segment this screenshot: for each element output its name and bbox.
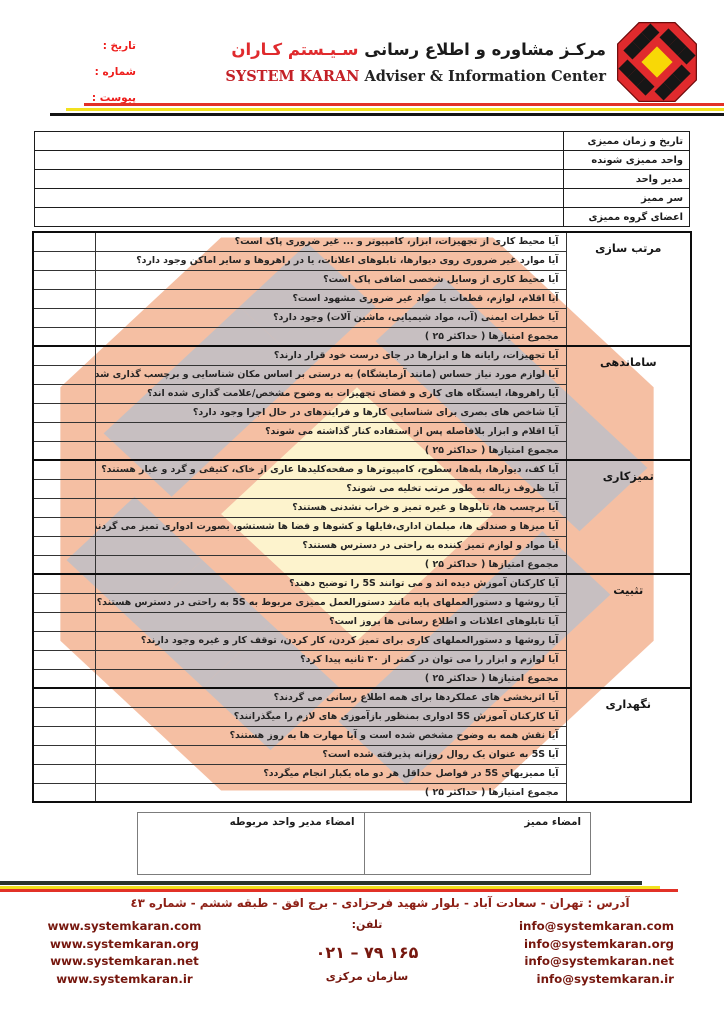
score-cell	[33, 707, 95, 726]
question-text: آیا خطرات ایمنی (آب، مواد شیمیایی، ماشین…	[95, 308, 566, 327]
score-cell	[33, 308, 95, 327]
score-cell	[33, 574, 95, 593]
website-item: www.systemkaran.ir	[22, 971, 227, 989]
score-cell	[33, 517, 95, 536]
question-text: آیا لوازم و ابزار را می توان در کمتر از …	[95, 650, 566, 669]
section-title: تمیزکاری	[566, 460, 691, 574]
info-row-value-cell	[35, 132, 564, 151]
website-list: www.systemkaran.comwww.systemkaran.orgww…	[22, 918, 227, 988]
header-stripe-yellow	[66, 108, 724, 111]
section-total-label: مجموع امتیازها ( حداکثر ۲۵ )	[95, 555, 566, 574]
company-title-en-red: SYSTEM KARAN	[225, 68, 359, 85]
checklist-section: نگهداریآیا اثربخشی های عملکردها برای همه…	[33, 688, 691, 802]
section-title: نگهداری	[566, 688, 691, 802]
company-title-fa-red: سـیـستم کـاران	[231, 40, 358, 59]
score-cell	[33, 745, 95, 764]
question-text: آیا محیط کاری از تجهیزات، ابزار، کامپیوت…	[95, 232, 566, 251]
total-score-cell	[33, 327, 95, 346]
score-cell	[33, 289, 95, 308]
checklist-section: تثبیتآیا کارکنان آموزش دیده اند و می توا…	[33, 574, 691, 688]
checklist-section: ساماندهیآیا تجهیزات، رایانه ها و ابزارها…	[33, 346, 691, 460]
score-cell	[33, 365, 95, 384]
question-text: آیا ظروف زباله به طور مرتب تخلیه می شوند…	[95, 479, 566, 498]
score-cell	[33, 270, 95, 289]
score-cell	[33, 384, 95, 403]
score-cell	[33, 650, 95, 669]
phone-label: تلفن:	[282, 918, 452, 931]
score-cell	[33, 631, 95, 650]
address-line: آدرس : تهران - سعادت آباد - بلوار شهید ف…	[60, 896, 700, 910]
question-text: آیا میزها و صندلی ها، مبلمان اداری،فایله…	[95, 517, 566, 536]
footer-stripe-black	[0, 881, 642, 885]
website-item: www.systemkaran.net	[22, 953, 227, 971]
question-text: آیا لوازم مورد نیاز حساس (مانند آزمایشگا…	[95, 365, 566, 384]
total-score-cell	[33, 783, 95, 802]
audit-info-table: تاریخ و زمان ممیزیواحد ممیزی شوندهمدیر و…	[34, 131, 690, 227]
question-text: آیا اقلام و ابزار بلافاصله پس از استفاده…	[95, 422, 566, 441]
question-text: آیا راهروها، ایستگاه های کاری و فضای تجه…	[95, 384, 566, 403]
header-stripe-black	[50, 113, 724, 116]
email-item: info@systemkaran.net	[474, 953, 674, 971]
system-karan-logo-icon	[616, 21, 698, 103]
header-stripe-red	[84, 103, 724, 106]
section-total-label: مجموع امتیازها ( حداکثر ۲۵ )	[95, 441, 566, 460]
question-text: آیا کارکنان آموزش 5S ادواری بمنظور بازآم…	[95, 707, 566, 726]
footer-stripe-red	[0, 889, 678, 892]
email-item: info@systemkaran.com	[474, 918, 674, 936]
question-text: آیا اثربخشی های عملکردها برای همه اطلاع …	[95, 688, 566, 707]
score-cell	[33, 479, 95, 498]
question-row: نگهداریآیا اثربخشی های عملکردها برای همه…	[33, 688, 691, 707]
section-title: تثبیت	[566, 574, 691, 688]
score-cell	[33, 688, 95, 707]
phone-number: ۰۲۱ – ۷۹ ۱۶۵	[282, 943, 452, 962]
question-text: آیا کارکنان آموزش دیده اند و می توانند 5…	[95, 574, 566, 593]
signature-row: امضاء ممیز امضاء مدیر واحد مربوطه	[138, 813, 591, 875]
total-score-cell	[33, 555, 95, 574]
info-row-value-cell	[35, 151, 564, 170]
auditor-signature-cell: امضاء ممیز	[364, 813, 591, 875]
phone-block: تلفن: ۰۲۱ – ۷۹ ۱۶۵ سازمان مرکزی	[282, 918, 452, 983]
question-text: آیا تجهیزات، رایانه ها و ابزارها در جای …	[95, 346, 566, 365]
score-cell	[33, 726, 95, 745]
question-text: آیا روشها و دستورالعملهای پایه مانند دست…	[95, 593, 566, 612]
section-total-label: مجموع امتیازها ( حداکثر ۲۵ )	[95, 669, 566, 688]
company-title-en-black: Adviser & Information Center	[365, 68, 607, 85]
score-cell	[33, 346, 95, 365]
website-item: www.systemkaran.com	[22, 918, 227, 936]
info-row: واحد ممیزی شونده	[35, 151, 690, 170]
total-score-cell	[33, 669, 95, 688]
info-row: سر ممیز	[35, 189, 690, 208]
question-row: مرتب سازیآیا محیط کاری از تجهیزات، ابزار…	[33, 232, 691, 251]
question-text: آیا مواد و لوازم تمیز کننده به راحتی در …	[95, 536, 566, 555]
question-row: ساماندهیآیا تجهیزات، رایانه ها و ابزارها…	[33, 346, 691, 365]
signature-table: امضاء ممیز امضاء مدیر واحد مربوطه	[137, 812, 591, 876]
question-text: آیا 5S به عنوان یک روال روزانه پذیرفته ش…	[95, 745, 566, 764]
document-page: تاریخ : شماره : پیوست : مرکـز مشاوره و ا…	[0, 0, 724, 1024]
company-title-en: SYSTEM KARAN Adviser & Information Cente…	[106, 68, 606, 85]
info-row-value-cell	[35, 170, 564, 189]
company-title-fa-black: مرکـز مشاوره و اطلاع رسانی	[364, 40, 606, 59]
question-text: آیا شاخص های بصری برای شناسایی کارها و ف…	[95, 403, 566, 422]
question-text: آیا ممیزیهای 5S در فواصل حداقل هر دو ماه…	[95, 764, 566, 783]
section-total-label: مجموع امتیازها ( حداکثر ۲۵ )	[95, 783, 566, 802]
question-text: آیا روشها و دستورالعملهای کاری برای تمیز…	[95, 631, 566, 650]
question-row: تمیزکاریآیا کف، دیوارها، پله‌ها، سطوح، ک…	[33, 460, 691, 479]
question-text: آیا نقش همه به وضوح مشخص شده است و آیا م…	[95, 726, 566, 745]
question-text: آیا کف، دیوارها، پله‌ها، سطوح، کامپیوتره…	[95, 460, 566, 479]
info-row-label: واحد ممیزی شونده	[564, 151, 690, 170]
score-cell	[33, 612, 95, 631]
email-item: info@systemkaran.org	[474, 936, 674, 954]
info-row: مدیر واحد	[35, 170, 690, 189]
info-row-label: تاریخ و زمان ممیزی	[564, 132, 690, 151]
question-text: آیا تابلوهای اعلانات و اطلاع رسانی ها بر…	[95, 612, 566, 631]
question-text: آیا برچسب ها، تابلوها و غیره تمیز و خراب…	[95, 498, 566, 517]
score-cell	[33, 251, 95, 270]
score-cell	[33, 498, 95, 517]
info-row-label: سر ممیز	[564, 189, 690, 208]
score-cell	[33, 232, 95, 251]
info-row-label: اعضای گروه ممیزی	[564, 208, 690, 227]
score-cell	[33, 403, 95, 422]
score-cell	[33, 764, 95, 783]
question-row: تثبیتآیا کارکنان آموزش دیده اند و می توا…	[33, 574, 691, 593]
section-total-label: مجموع امتیازها ( حداکثر ۲۵ )	[95, 327, 566, 346]
total-score-cell	[33, 441, 95, 460]
score-cell	[33, 536, 95, 555]
question-text: آیا موارد غیر ضروری روی دیوارها، تابلوها…	[95, 251, 566, 270]
info-row: اعضای گروه ممیزی	[35, 208, 690, 227]
info-row-value-cell	[35, 189, 564, 208]
manager-signature-cell: امضاء مدیر واحد مربوطه	[138, 813, 365, 875]
email-list: info@systemkaran.cominfo@systemkaran.org…	[474, 918, 674, 988]
central-org-label: سازمان مرکزی	[282, 970, 452, 983]
question-text: آیا محیط کاری از وسایل شخصی اضافی پاک اس…	[95, 270, 566, 289]
info-row-label: مدیر واحد	[564, 170, 690, 189]
question-text: آیا اقلام، لوازم، قطعات یا مواد غیر ضرور…	[95, 289, 566, 308]
company-title-fa: مرکـز مشاوره و اطلاع رسانی سـیـستم کـارا…	[106, 40, 606, 59]
checklist-section: تمیزکاریآیا کف، دیوارها، پله‌ها، سطوح، ک…	[33, 460, 691, 574]
header-titles: مرکـز مشاوره و اطلاع رسانی سـیـستم کـارا…	[106, 40, 606, 85]
checklist-section: مرتب سازیآیا محیط کاری از تجهیزات، ابزار…	[33, 232, 691, 346]
website-item: www.systemkaran.org	[22, 936, 227, 954]
info-row: تاریخ و زمان ممیزی	[35, 132, 690, 151]
score-cell	[33, 593, 95, 612]
info-row-value-cell	[35, 208, 564, 227]
section-title: مرتب سازی	[566, 232, 691, 346]
score-cell	[33, 422, 95, 441]
section-title: ساماندهی	[566, 346, 691, 460]
email-item: info@systemkaran.ir	[474, 971, 674, 989]
checklist-table: مرتب سازیآیا محیط کاری از تجهیزات، ابزار…	[32, 231, 692, 803]
score-cell	[33, 460, 95, 479]
